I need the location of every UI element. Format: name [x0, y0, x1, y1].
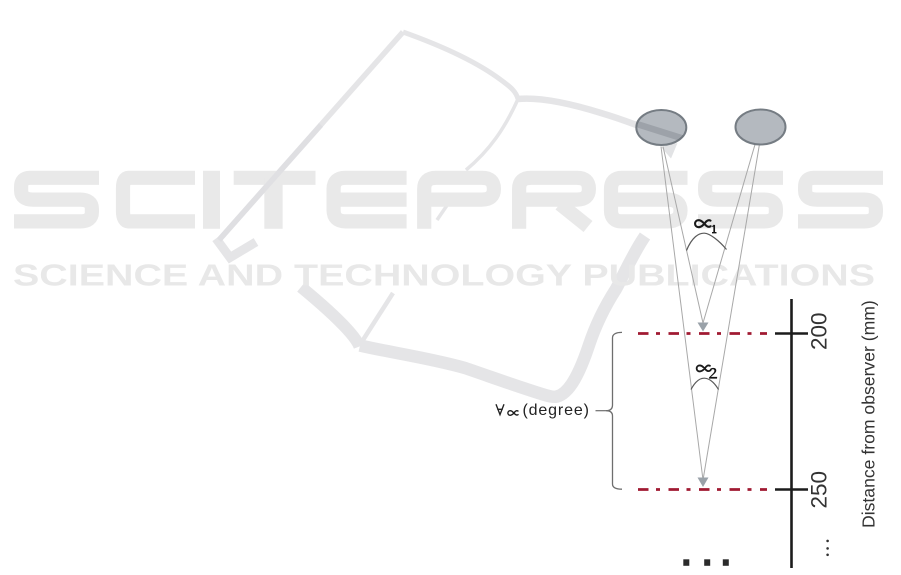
svg-text:SCIENCE AND TECHNOLOGY PUBLICA: SCIENCE AND TECHNOLOGY PUBLICATIONS	[13, 258, 875, 293]
svg-text:200: 200	[807, 312, 832, 350]
svg-text:250: 250	[807, 471, 832, 509]
svg-text:(degree): (degree)	[523, 402, 590, 419]
svg-text:Distance from observer (mm): Distance from observer (mm)	[859, 300, 879, 528]
